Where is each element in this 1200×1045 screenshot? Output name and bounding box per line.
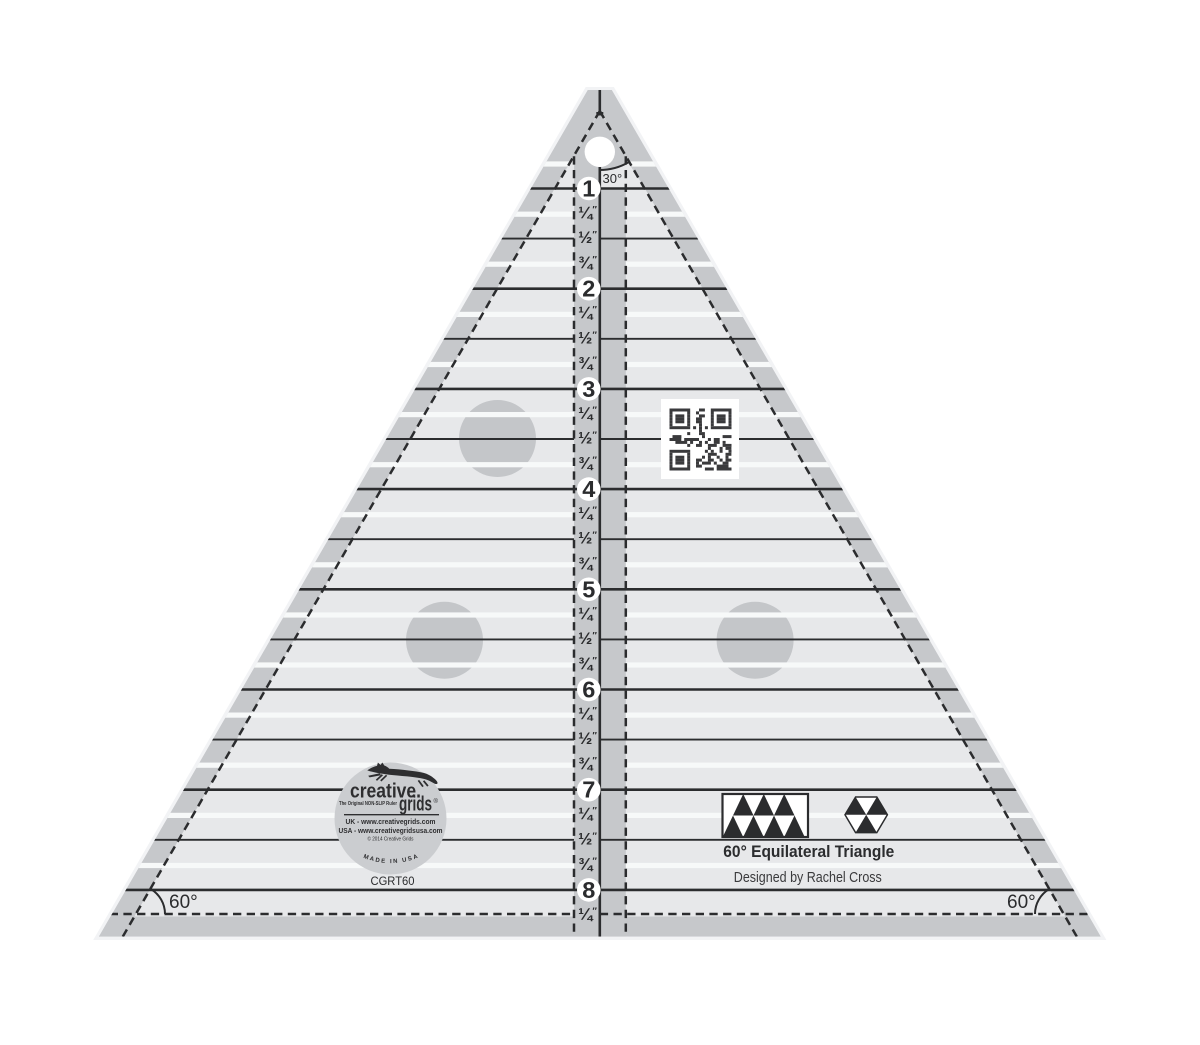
svg-text:© 2014 Creative Grids: © 2014 Creative Grids bbox=[368, 836, 414, 843]
svg-text:60° Equilateral Triangle: 60° Equilateral Triangle bbox=[723, 843, 894, 861]
svg-text:2: 2 bbox=[582, 276, 595, 302]
svg-text:CGRT60: CGRT60 bbox=[371, 874, 415, 888]
svg-text:USA - www.creativegridsusa.com: USA - www.creativegridsusa.com bbox=[339, 826, 443, 835]
svg-text:60°: 60° bbox=[169, 892, 198, 913]
svg-text:®: ® bbox=[434, 798, 439, 805]
svg-text:Designed by Rachel Cross: Designed by Rachel Cross bbox=[734, 870, 882, 886]
svg-text:UK - www.creativegrids.com: UK - www.creativegrids.com bbox=[346, 817, 436, 826]
svg-text:5: 5 bbox=[582, 576, 595, 602]
svg-text:3: 3 bbox=[582, 376, 595, 402]
svg-text:60°: 60° bbox=[1007, 892, 1036, 913]
svg-text:The Original NON-SLIP Ruler: The Original NON-SLIP Ruler bbox=[339, 801, 397, 807]
svg-text:6: 6 bbox=[582, 677, 595, 703]
svg-text:grids: grids bbox=[399, 794, 432, 816]
svg-text:7: 7 bbox=[582, 777, 595, 803]
svg-text:1: 1 bbox=[582, 176, 595, 202]
svg-text:30°: 30° bbox=[603, 171, 623, 186]
svg-text:4: 4 bbox=[582, 476, 595, 502]
svg-text:8: 8 bbox=[582, 877, 595, 903]
